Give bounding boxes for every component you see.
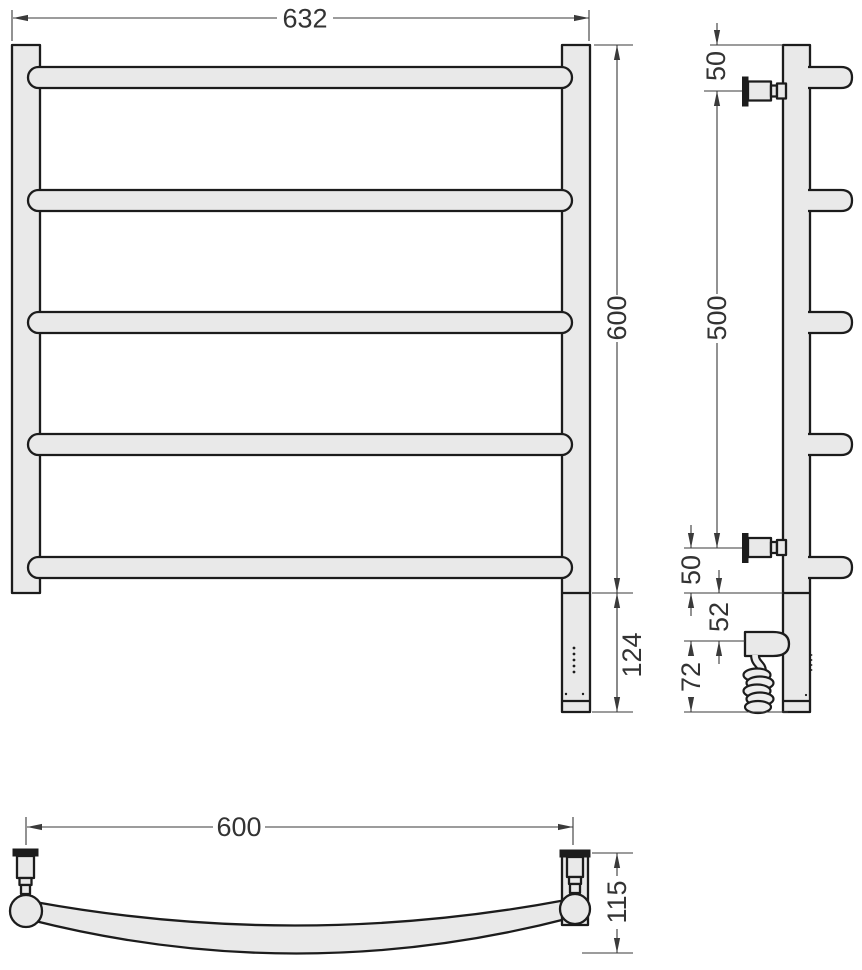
bottom-curved-bar	[31, 900, 570, 954]
screw-dot	[805, 694, 807, 696]
side-bar-stub	[808, 434, 852, 455]
indicator-dot	[573, 671, 576, 674]
front-right-post	[562, 45, 590, 712]
front-bar	[28, 190, 572, 211]
side-bar-stub	[808, 312, 852, 333]
post-tube-circle	[10, 895, 42, 927]
drawing-canvas: 632 600 124 50 500 50 52	[0, 0, 862, 970]
dim-label-front-height: 600	[602, 295, 632, 340]
bracket-body	[17, 856, 34, 878]
dim-label-bottom-depth: 115	[602, 880, 632, 923]
front-bar	[28, 67, 572, 88]
front-view	[12, 45, 590, 712]
indicator-dot	[573, 665, 576, 668]
bracket-neck	[570, 884, 580, 893]
heater-housing	[745, 632, 789, 656]
bracket-neck	[21, 885, 30, 894]
side-post	[783, 45, 810, 712]
bottom-view	[10, 849, 590, 954]
indicator-dot	[811, 654, 813, 656]
front-bar	[28, 557, 572, 578]
power-cable-coil	[744, 655, 774, 713]
front-bar	[28, 434, 572, 455]
dim-label-side-top-offset: 50	[701, 51, 731, 81]
bracket-body	[567, 857, 583, 877]
indicator-dot	[573, 647, 576, 650]
dim-label-side-bottom-offset: 50	[676, 555, 706, 585]
side-bar-stubs	[808, 67, 852, 578]
technical-drawing: 632 600 124 50 500 50 52	[0, 0, 862, 970]
bracket-nut	[777, 84, 786, 99]
screw-dot	[565, 693, 567, 695]
wall-bracket-bottom	[743, 534, 787, 563]
front-bar	[28, 312, 572, 333]
post-tube-circle	[560, 894, 590, 924]
bottom-left-bracket	[10, 849, 42, 927]
dim-label-bottom-width: 600	[216, 812, 261, 842]
indicator-dot	[573, 653, 576, 656]
wall-bracket-top	[743, 77, 787, 106]
side-bar-stub	[808, 557, 852, 578]
side-view	[743, 45, 853, 713]
indicator-dot	[811, 659, 813, 661]
dim-label-front-width: 632	[282, 4, 327, 34]
side-bar-stub	[808, 190, 852, 211]
indicator-dot	[811, 669, 813, 671]
coil-loop	[745, 701, 771, 713]
dim-label-side-heater-height: 72	[676, 662, 706, 692]
bracket-nut	[777, 540, 786, 555]
dimensions: 632 600 124 50 500 50 52	[12, 4, 788, 954]
screw-dot	[582, 693, 584, 695]
dim-label-side-base-to-heater: 52	[704, 602, 734, 632]
bracket-body	[748, 538, 771, 557]
front-bars	[28, 67, 572, 578]
bottom-right-bracket	[560, 850, 590, 925]
indicator-dot	[573, 659, 576, 662]
side-bar-stub	[808, 67, 852, 88]
indicator-dot	[811, 664, 813, 666]
dim-label-front-heater-section: 124	[617, 632, 647, 677]
bracket-body	[748, 82, 771, 101]
dim-label-side-bracket-spacing: 500	[702, 295, 732, 340]
